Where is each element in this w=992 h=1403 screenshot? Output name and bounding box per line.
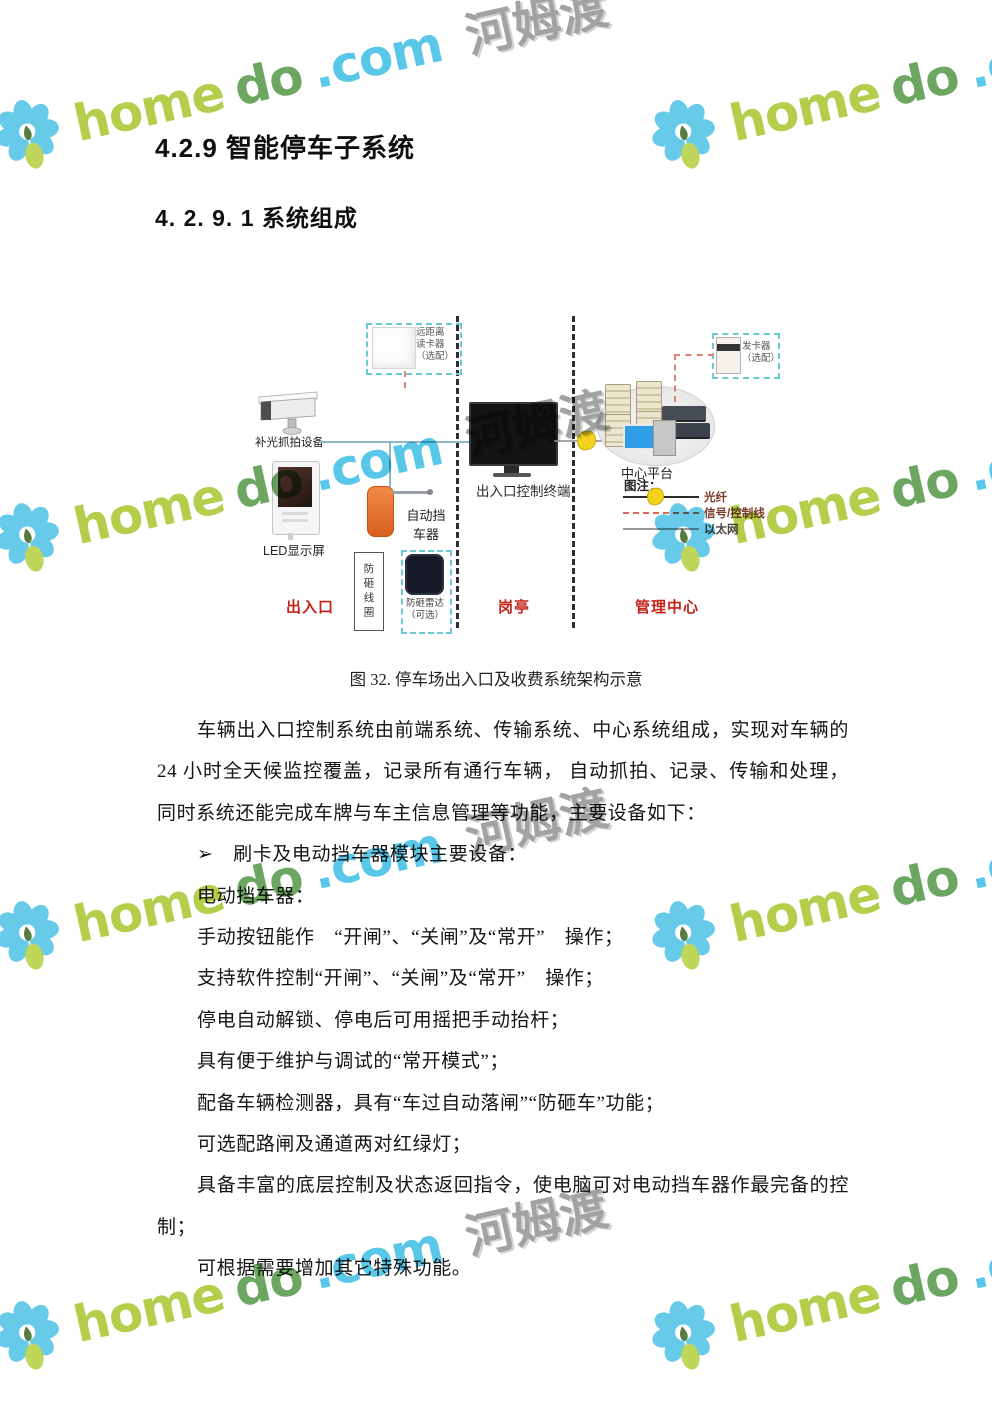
coil-label: 防砸线圈: [362, 563, 377, 621]
legend-ethernet-line: [623, 528, 699, 530]
homedo-flower-icon: [0, 489, 72, 587]
section-heading: 4.2.9 智能停车子系统: [155, 128, 415, 165]
body-line: 具备丰富的底层控制及状态返回指令，使电脑可对电动挡车器作最完备的控: [157, 1165, 849, 1206]
workstation-screen-icon: [623, 424, 655, 450]
figure-parking-architecture: 远距离 读卡器 （选配） 补光抓拍设备 LED显示屏 自动挡 车器 防砸: [255, 310, 779, 644]
zone-entrance-label: 出入口: [286, 596, 334, 617]
homedo-flower-icon: [0, 887, 72, 985]
body-line: 具有便于维护与调试的“常开模式”；: [157, 1041, 849, 1082]
terminal-monitor-icon: [469, 402, 558, 466]
homedo-flower-icon: [0, 86, 72, 184]
signal-line: [404, 371, 406, 388]
body-line: 车辆出入口控制系统由前端系统、传输系统、中心系统组成，实现对车辆的: [157, 710, 849, 751]
coil-box: 防砸线圈: [354, 552, 384, 631]
body-line: 手动按钮能作 “开闸”、“关闸”及“常开” 操作；: [157, 917, 849, 958]
watermark-do-text: do: [886, 851, 963, 915]
body-line: 配备车辆检测器，具有“车过自动落闸”“防砸车”功能；: [157, 1083, 849, 1124]
ethernet-line: [318, 441, 470, 443]
issuer-slot: [717, 344, 740, 351]
body-line-bullet: ➢ 刷卡及电动挡车器模块主要设备：: [157, 834, 849, 875]
zone-divider: [572, 316, 575, 628]
barrier-arm: [392, 491, 429, 494]
led-slot: [282, 512, 308, 515]
body-line: 可根据需要增加其它特殊功能。: [157, 1248, 849, 1289]
watermark-com-text: .com: [964, 422, 992, 499]
body-text: 车辆出入口控制系统由前端系统、传输系统、中心系统组成，实现对车辆的 24 小时全…: [157, 710, 849, 1289]
body-line: 24 小时全天候监控覆盖，记录所有通行车辆， 自动抓拍、记录、传输和处理，: [157, 751, 849, 792]
card-reader-icon: [372, 327, 416, 369]
barrier-gate-icon: [367, 486, 394, 537]
monitor-base: [493, 473, 531, 477]
body-line: 可选配路闸及通道两对红绿灯；: [157, 1124, 849, 1165]
body-line: 停电自动解锁、停电后可用摇把手动抬杆；: [157, 1000, 849, 1041]
terminal-label: 出入口控制终端: [476, 480, 604, 500]
signal-line: [674, 354, 714, 356]
barrier-label: 自动挡 车器: [394, 505, 458, 543]
watermark-do-text: do: [230, 50, 307, 114]
body-line: 电动挡车器：: [157, 876, 849, 917]
zone-booth-label: 岗亭: [498, 596, 530, 617]
signal-line: [674, 354, 676, 402]
body-line: 支持软件控制“开闸”、“关闸”及“常开” 操作；: [157, 958, 849, 999]
card-issuer-label: 发卡器 （选配）: [742, 341, 778, 365]
homedo-flower-icon: [0, 1287, 72, 1385]
watermark: homedo.com 河姆渡: [640, 0, 992, 184]
legend-fiber-label: 光纤: [704, 489, 727, 505]
subsection-heading: 4. 2. 9. 1 系统组成: [155, 199, 358, 233]
monitor-stand: [504, 466, 519, 473]
legend-signal-label: 信号/控制线: [704, 505, 765, 521]
watermark-cjk-text: 河姆渡: [461, 0, 612, 61]
radar-icon: [405, 554, 444, 595]
card-reader-label: 远距离 读卡器 （选配）: [416, 327, 460, 363]
watermark-do-text: do: [886, 50, 963, 114]
card-issuer-icon: [716, 337, 741, 374]
watermark-do-text: do: [886, 1251, 963, 1315]
lightning-icon: ⚡: [645, 486, 665, 506]
watermark-home-text: home: [69, 470, 228, 552]
watermark-home-text: home: [725, 67, 884, 149]
led-display-icon: [272, 461, 320, 535]
watermark-do-text: do: [886, 453, 963, 517]
led-label: LED显示屏: [263, 540, 339, 559]
legend-ethernet-label: 以太网: [704, 521, 739, 537]
figure-caption: 图 32. 停车场出入口及收费系统架构示意: [0, 666, 992, 690]
led-screen: [278, 467, 312, 507]
watermark-com-text: .com: [964, 820, 992, 897]
legend-signal-line: [623, 512, 699, 514]
watermark-com-text: .com: [964, 1220, 992, 1297]
led-stand: [288, 533, 293, 540]
control-line: [389, 441, 391, 487]
homedo-flower-icon: [640, 86, 728, 184]
watermark-com-text: .com: [308, 19, 447, 96]
radar-label: 防砸雷达 （可选）: [402, 598, 448, 622]
body-line: 同时系统还能完成车牌与车主信息管理等功能，主要设备如下：: [157, 793, 849, 834]
body-line: 制；: [157, 1207, 849, 1248]
zone-center-label: 管理中心: [635, 596, 699, 617]
barrier-arm-tip: [427, 489, 433, 495]
lightning-icon: ⚡: [575, 429, 598, 452]
workstation-tower-icon: [653, 420, 676, 456]
camera-icon: [257, 390, 321, 436]
document-page: homedo.com 河姆渡 homedo.com 河姆渡: [0, 0, 992, 1403]
led-slot: [282, 519, 308, 522]
watermark-com-text: .com: [964, 19, 992, 96]
homedo-flower-icon: [640, 1287, 728, 1385]
